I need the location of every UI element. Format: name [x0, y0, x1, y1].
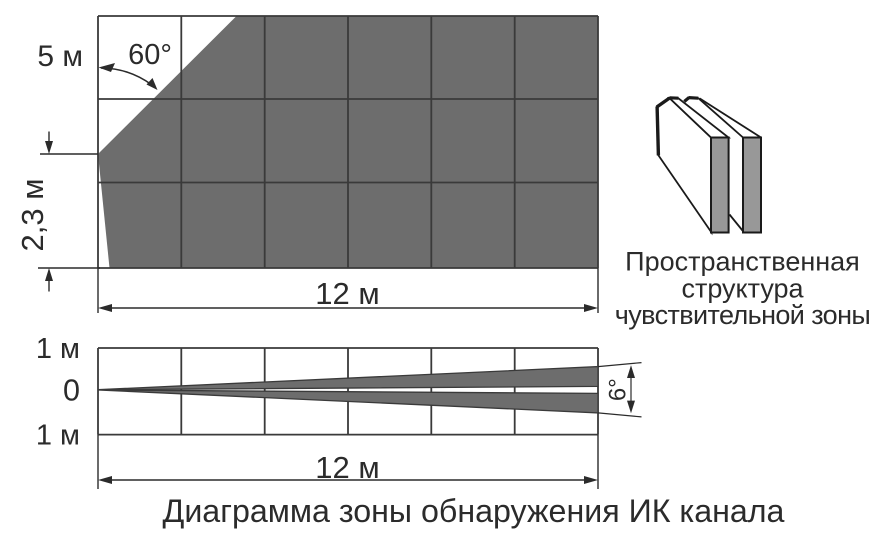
svg-text:1 м: 1 м [36, 420, 80, 452]
svg-text:Диаграмма зоны обнаружения ИК: Диаграмма зоны обнаружения ИК канала [163, 493, 785, 529]
svg-text:60°: 60° [128, 39, 172, 71]
svg-text:6°: 6° [605, 378, 632, 401]
svg-text:2,3 м: 2,3 м [15, 178, 50, 251]
svg-text:12 м: 12 м [315, 276, 379, 311]
svg-text:5 м: 5 м [37, 40, 83, 73]
svg-text:0: 0 [63, 374, 80, 408]
svg-text:структура: структура [681, 273, 804, 303]
svg-text:12 м: 12 м [315, 450, 379, 485]
svg-text:чувствительной зоны: чувствительной зоны [615, 300, 870, 330]
svg-text:Пространственная: Пространственная [625, 247, 860, 277]
svg-text:1 м: 1 м [36, 333, 80, 365]
